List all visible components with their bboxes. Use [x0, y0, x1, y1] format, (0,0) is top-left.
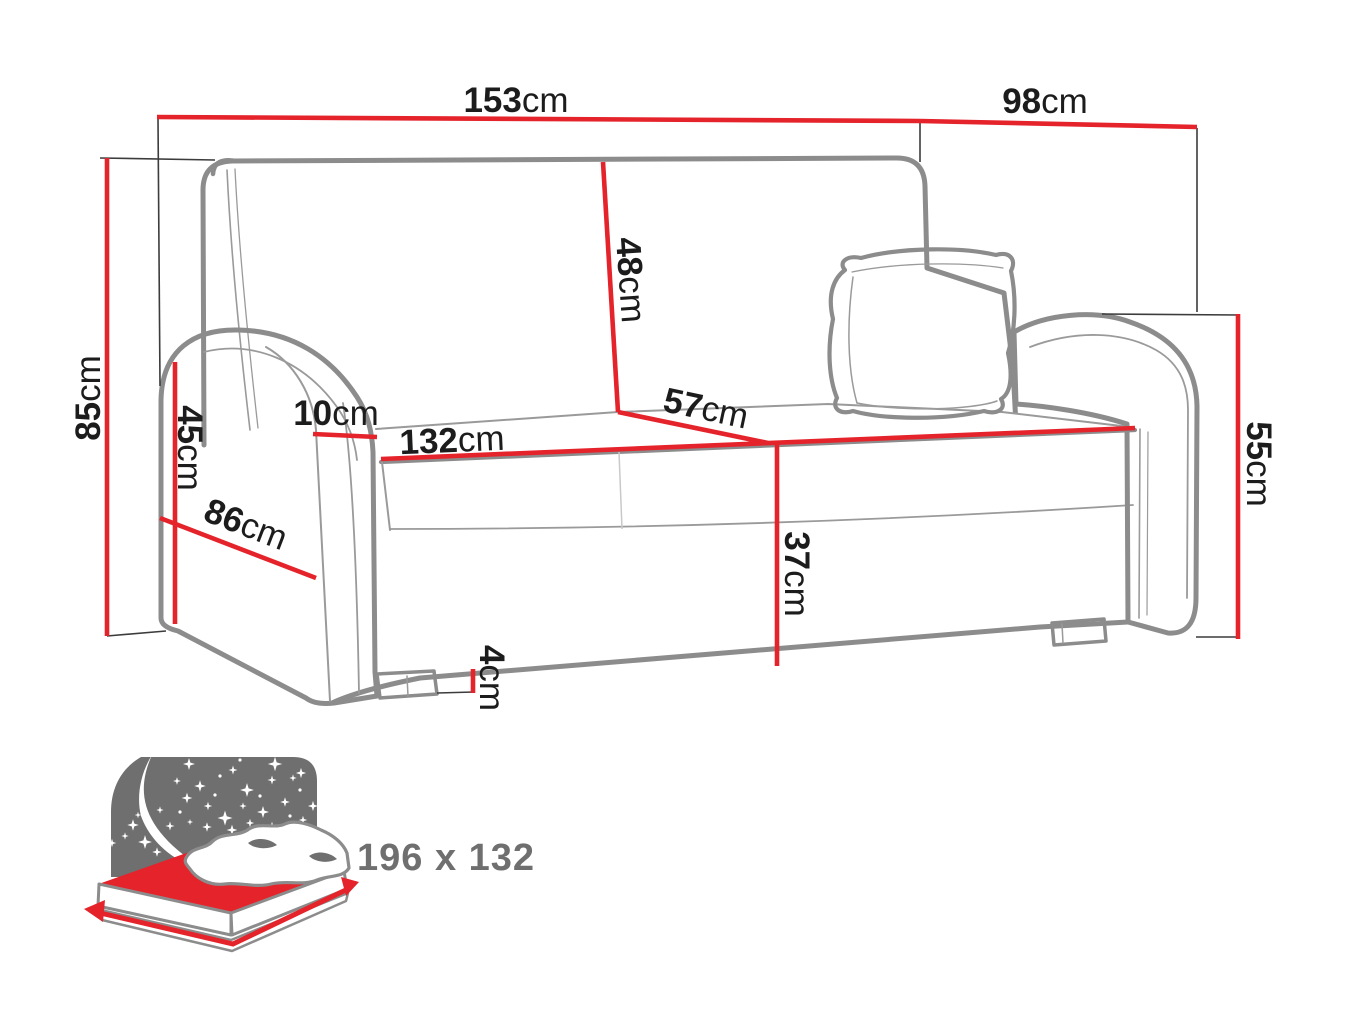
sleeping-area-size: 196 x 132 — [357, 837, 535, 879]
ext-line — [1102, 314, 1240, 315]
star-dot — [298, 788, 301, 791]
ext-line — [107, 631, 166, 636]
right-leg-seam — [1062, 624, 1063, 643]
right-armrest-front-seam — [1139, 429, 1140, 618]
dim-armrest-side-depth-label: 86cm — [199, 491, 293, 558]
dim-seat-width-label: 132cm — [399, 419, 506, 463]
star-dot — [238, 758, 241, 761]
ext-line — [158, 118, 160, 386]
star-dot — [218, 774, 221, 777]
ext-line — [437, 692, 474, 693]
ext-line — [100, 158, 215, 160]
dim-overall-width-label: 153cm — [463, 81, 568, 120]
diagram-canvas: 153cm 98cm 85cm 45cm 10cm 86cm 48cm 57cm… — [0, 0, 1347, 1010]
star-dot — [148, 820, 151, 823]
dim-leg-height-label: 4cm — [472, 645, 511, 711]
dim-backrest-height-label: 48cm — [608, 236, 653, 324]
left-leg-seam — [407, 676, 408, 696]
star-dot — [213, 793, 216, 796]
dim-armrest-width-label: 10cm — [293, 394, 379, 433]
dim-armrest-width-line — [313, 434, 377, 437]
sofa-dimension-diagram: 153cm 98cm 85cm 45cm 10cm 86cm 48cm 57cm… — [0, 0, 1347, 1010]
star-dot — [288, 814, 291, 817]
star-dot — [178, 810, 181, 813]
dim-overall-depth-line — [920, 121, 1197, 127]
arrow-head-left — [84, 900, 105, 922]
dim-armrest-front-height-label: 45cm — [170, 405, 209, 491]
sleep-function-icon: 196 x 132 — [84, 755, 535, 951]
dim-seat-height-label: 37cm — [777, 531, 816, 617]
dim-overall-depth-label: 98cm — [1002, 82, 1088, 121]
dim-overall-height-label: 85cm — [69, 355, 108, 441]
right-armrest-front-seam — [1147, 432, 1148, 615]
star-dot — [258, 794, 261, 797]
dim-armrest-outer-height-label: 55cm — [1239, 421, 1278, 507]
